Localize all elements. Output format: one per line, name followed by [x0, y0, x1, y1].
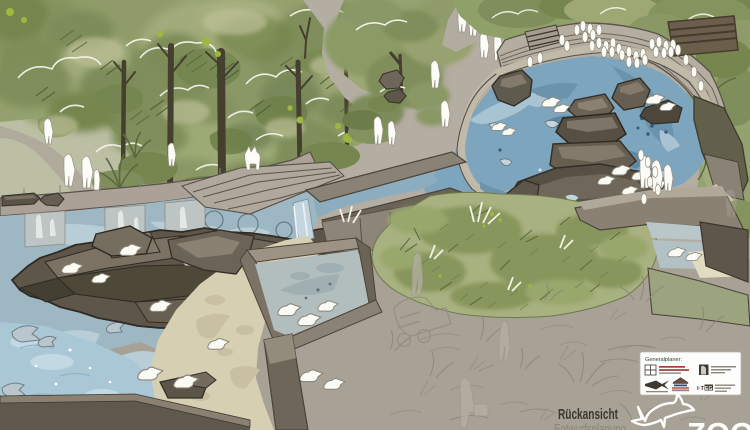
svg-text:Entwurfsplanung: Entwurfsplanung	[554, 421, 626, 430]
svg-text:Generalplaner:: Generalplaner:	[645, 357, 682, 363]
svg-text:I·T: I·T	[697, 386, 705, 392]
svg-text:ZOO: ZOO	[687, 416, 750, 430]
svg-text:EG: EG	[705, 386, 713, 392]
